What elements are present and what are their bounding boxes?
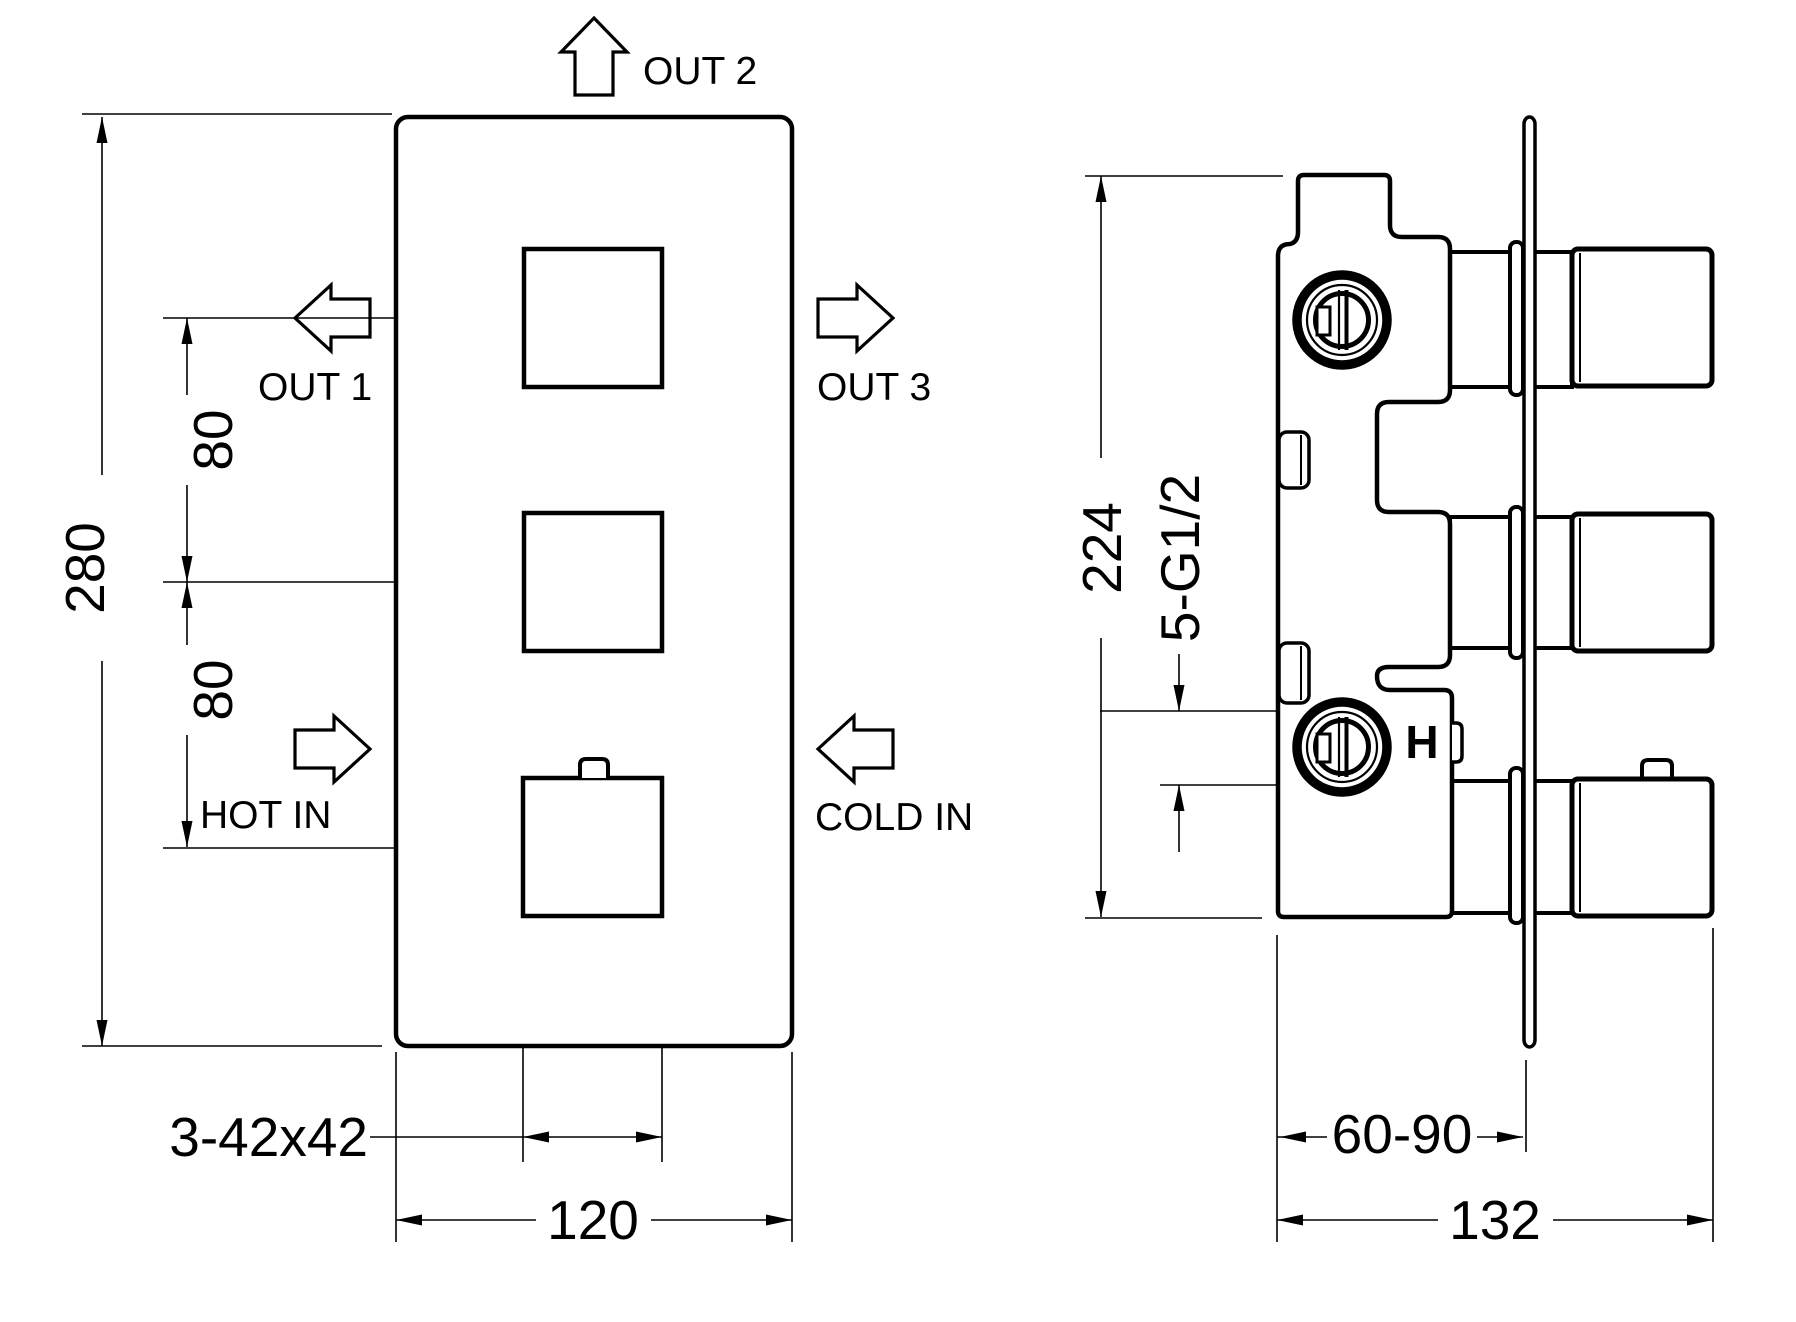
port-boss-upper — [1279, 432, 1309, 488]
arrowhead — [636, 1132, 662, 1143]
escutcheon-top — [1510, 242, 1523, 395]
arrowhead — [766, 1215, 792, 1226]
port-keyway — [1317, 307, 1330, 335]
port-outer-ring — [1297, 702, 1387, 792]
port-boss-lower — [1279, 643, 1309, 703]
arrowhead — [182, 318, 193, 344]
arrowhead — [97, 1020, 108, 1046]
arrowhead — [1687, 1215, 1713, 1226]
arrowhead — [182, 582, 193, 608]
dim-5-g12: 5-G1/2 — [1149, 474, 1211, 642]
hot-marker: H — [1405, 716, 1438, 768]
technical-drawing-page: OUT 2 OUT 1 OUT 3 HOT IN COLD IN 280 80 … — [0, 0, 1796, 1322]
dim-132: 132 — [1449, 1189, 1541, 1251]
arrowhead — [1096, 891, 1107, 917]
dim-224: 224 — [1071, 502, 1133, 594]
handle-square-bottom — [523, 778, 662, 916]
escutcheon-middle — [1510, 507, 1523, 658]
handle-bottom-tab — [580, 759, 608, 778]
out3-arrow-icon — [818, 285, 893, 351]
port-keyway — [1317, 734, 1330, 762]
escutcheon-bottom — [1510, 768, 1523, 923]
dim-280: 280 — [54, 522, 116, 614]
side-view: H 224 5-G1/2 60-90 132 — [1071, 117, 1713, 1251]
valve-drawing-svg: OUT 2 OUT 1 OUT 3 HOT IN COLD IN 280 80 … — [0, 0, 1796, 1322]
side-knobs — [1572, 249, 1712, 916]
cold-in-label: COLD IN — [815, 796, 973, 839]
port-circle-upper — [1297, 275, 1387, 365]
escutcheons — [1510, 242, 1523, 923]
hot-in-arrow-icon — [295, 716, 370, 782]
knob-middle — [1572, 514, 1712, 651]
arrowhead — [182, 821, 193, 847]
dim-60-90: 60-90 — [1332, 1103, 1473, 1165]
knob-bottom — [1572, 779, 1712, 916]
dim-3-42x42: 3-42x42 — [169, 1106, 368, 1168]
handle-square-top — [524, 249, 662, 387]
out2-label: OUT 2 — [643, 50, 757, 93]
knob-bottom-tab — [1642, 760, 1672, 779]
handle-square-middle — [524, 513, 662, 651]
arrowhead — [1280, 1132, 1306, 1143]
arrowhead — [1096, 176, 1107, 202]
arrowhead — [523, 1132, 549, 1143]
port-circle-lower — [1297, 702, 1387, 792]
port-outer-ring — [1297, 275, 1387, 365]
faceplate-edge — [1524, 117, 1535, 1047]
out2-arrow-icon — [561, 18, 627, 95]
knob-top — [1572, 249, 1712, 386]
dim-120: 120 — [547, 1189, 639, 1251]
arrowhead — [182, 556, 193, 582]
arrowhead — [1174, 685, 1185, 711]
body-front-tab — [1452, 723, 1462, 762]
front-view: OUT 2 OUT 1 OUT 3 HOT IN COLD IN 280 80 … — [52, 18, 973, 1251]
arrowhead — [396, 1215, 422, 1226]
dim-80-lower: 80 — [182, 659, 244, 720]
arrowhead — [1277, 1215, 1303, 1226]
arrowhead — [1174, 785, 1185, 811]
arrowhead — [97, 117, 108, 143]
cold-in-arrow-icon — [818, 716, 893, 782]
out1-label: OUT 1 — [258, 366, 372, 409]
arrowhead — [1497, 1132, 1523, 1143]
hot-in-label: HOT IN — [200, 794, 331, 837]
dim-80-upper: 80 — [182, 409, 244, 470]
out3-label: OUT 3 — [817, 366, 931, 409]
